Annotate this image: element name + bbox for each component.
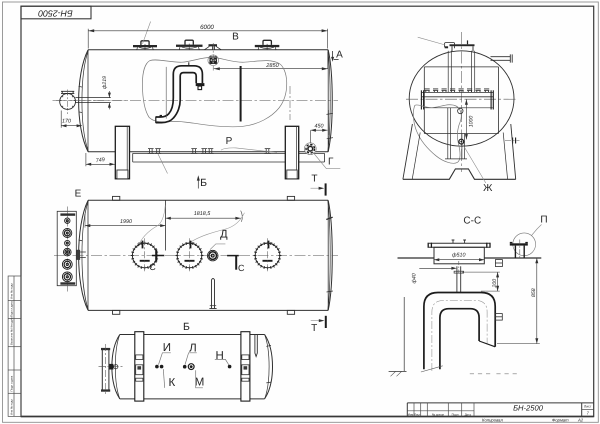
svg-text:170: 170 (62, 119, 71, 125)
svg-text:Ж: Ж (483, 183, 493, 194)
svg-text:Т: Т (311, 323, 317, 334)
svg-text:450: 450 (315, 124, 324, 130)
svg-text:С: С (238, 263, 245, 273)
svg-text:Подп: Подп (452, 412, 459, 416)
svg-text:2850: 2850 (265, 63, 279, 69)
svg-text:200: 200 (492, 279, 498, 289)
svg-text:М: М (195, 376, 205, 388)
svg-text:ф219: ф219 (102, 76, 108, 89)
svg-text:Подп и дата: Подп и дата (9, 301, 13, 317)
svg-text:1990: 1990 (120, 219, 132, 225)
svg-text:Копировал: Копировал (482, 418, 503, 423)
svg-text:Р: Р (226, 136, 233, 147)
svg-text:6000: 6000 (200, 24, 214, 31)
svg-text:Н: Н (215, 350, 223, 362)
svg-text:Инв № подл: Инв № подл (9, 283, 13, 299)
svg-text:Б: Б (200, 177, 207, 189)
svg-text:Лист: Лист (584, 405, 592, 409)
svg-text:Дата: Дата (465, 412, 472, 416)
svg-text:В: В (232, 31, 239, 42)
svg-text:П: П (540, 214, 547, 225)
svg-text:858: 858 (531, 288, 537, 297)
svg-text:БН-2500: БН-2500 (513, 404, 544, 413)
svg-text:А: А (336, 50, 343, 61)
svg-text:С: С (149, 262, 156, 272)
svg-text:Б: Б (183, 321, 190, 333)
svg-text:749: 749 (95, 157, 105, 164)
svg-text:№ докум: № докум (432, 412, 444, 416)
svg-text:А2: А2 (577, 418, 584, 423)
svg-text:ф510: ф510 (452, 252, 466, 258)
svg-text:Взам инв № Инв дубл: Взам инв № Инв дубл (9, 316, 13, 345)
svg-text:Е: Е (75, 189, 82, 200)
svg-text:ф40: ф40 (412, 273, 418, 283)
svg-text:Г: Г (328, 156, 334, 167)
svg-text:К: К (168, 377, 175, 389)
svg-text:БН-2500: БН-2500 (38, 8, 73, 18)
svg-text:Лист: Лист (414, 412, 421, 416)
svg-text:1818,5: 1818,5 (194, 211, 211, 217)
svg-text:1000: 1000 (468, 116, 474, 128)
svg-text:Инв № подл: Инв № подл (9, 399, 13, 415)
svg-text:Подп и дата: Подп и дата (9, 375, 13, 391)
svg-text:И: И (163, 342, 171, 354)
svg-text:Изм: Изм (408, 412, 413, 416)
svg-text:Д: Д (220, 229, 228, 241)
svg-text:Формат: Формат (552, 418, 569, 423)
svg-text:Т: Т (311, 174, 317, 185)
svg-text:С-С: С-С (463, 215, 481, 226)
